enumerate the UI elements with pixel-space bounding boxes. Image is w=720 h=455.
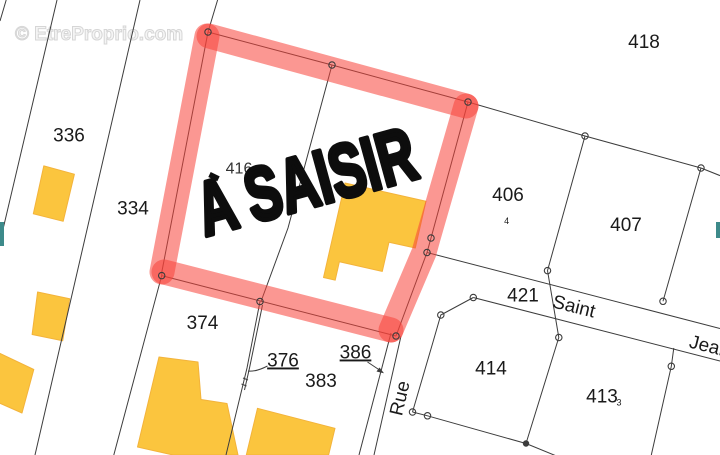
svg-text:336: 336 bbox=[53, 126, 85, 147]
svg-text:413: 413 bbox=[586, 386, 618, 407]
svg-text:407: 407 bbox=[610, 215, 642, 236]
svg-text:406: 406 bbox=[492, 185, 524, 206]
svg-text:334: 334 bbox=[117, 198, 149, 219]
svg-text:421: 421 bbox=[507, 286, 539, 307]
svg-text:3: 3 bbox=[616, 398, 621, 408]
svg-text:386: 386 bbox=[340, 343, 372, 364]
svg-text:414: 414 bbox=[475, 359, 507, 380]
svg-text:376: 376 bbox=[267, 351, 299, 372]
svg-text:418: 418 bbox=[628, 32, 660, 53]
svg-text:374: 374 bbox=[187, 313, 219, 334]
svg-text:© EtreProprio.com: © EtreProprio.com bbox=[15, 24, 183, 45]
svg-text:4: 4 bbox=[504, 216, 509, 226]
svg-text:383: 383 bbox=[305, 371, 337, 392]
